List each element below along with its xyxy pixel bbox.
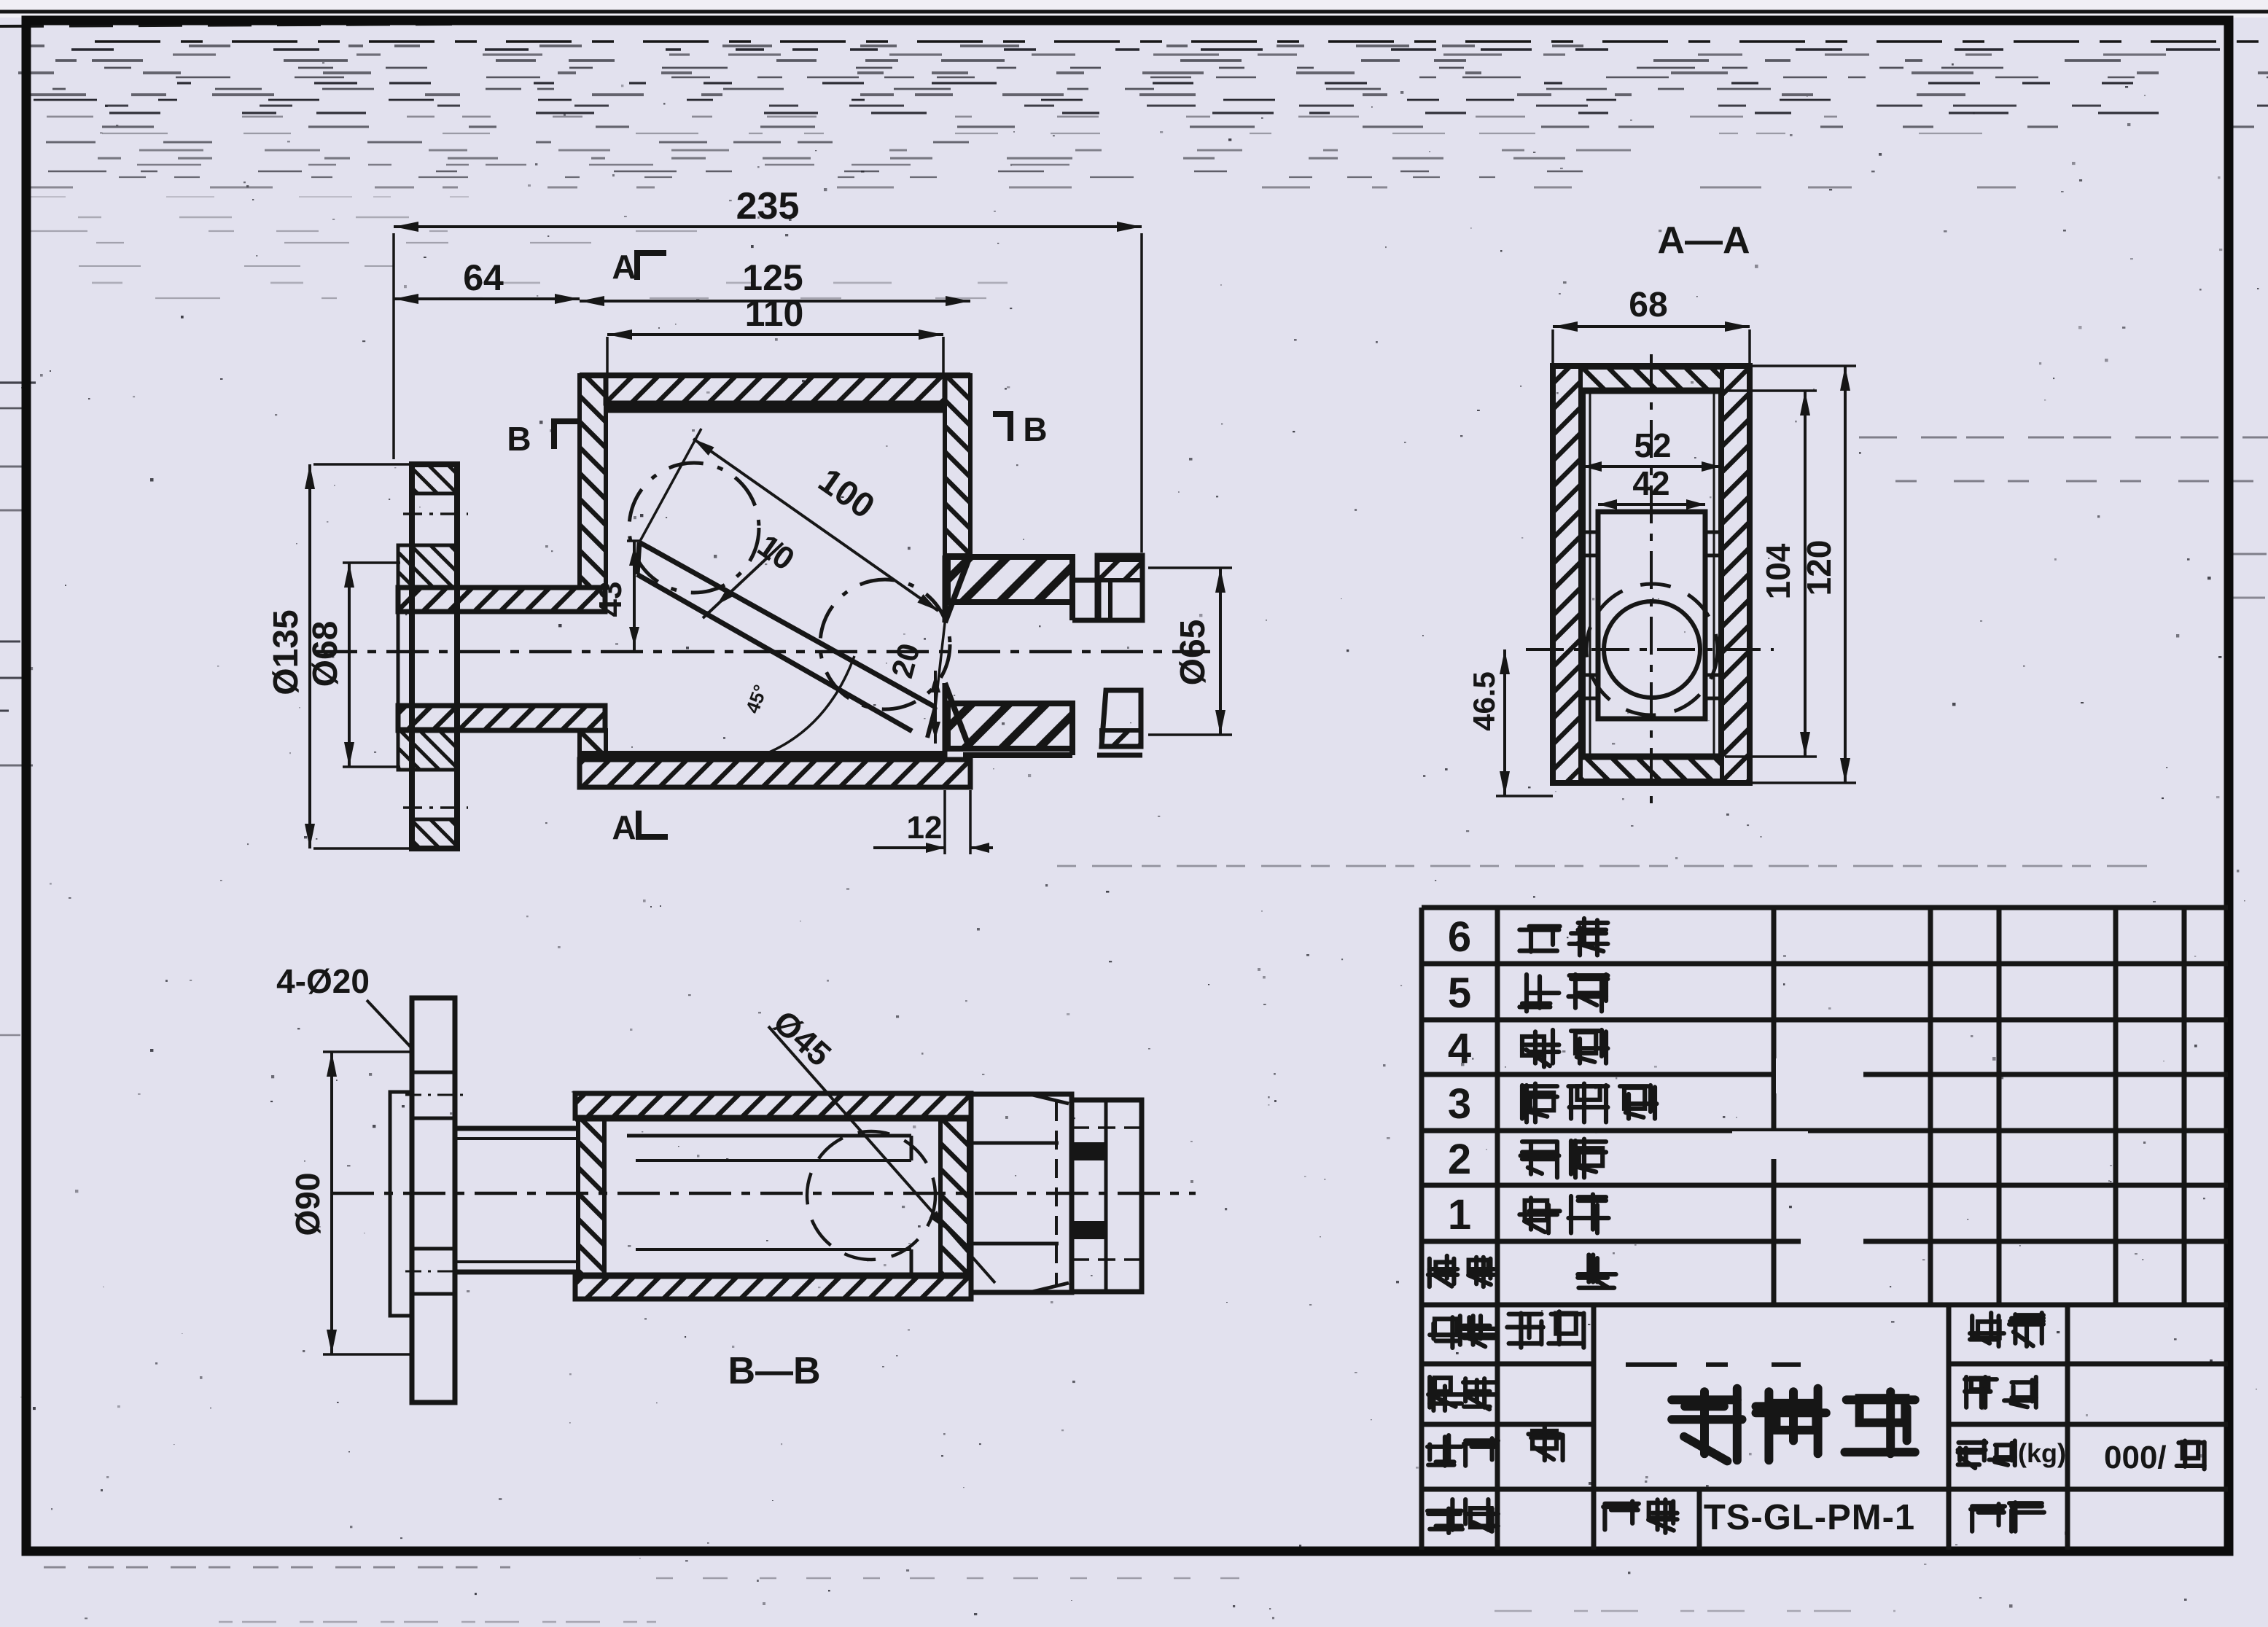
svg-text:Ø65: Ø65 [1174,620,1212,686]
svg-text:Ø68: Ø68 [306,621,345,687]
svg-text:235: 235 [736,185,800,227]
svg-text:125: 125 [742,257,803,298]
svg-text:TS-GL-PM-1: TS-GL-PM-1 [1704,1498,1915,1537]
svg-text:6: 6 [1448,913,1471,961]
svg-text:A—A: A—A [1657,219,1750,262]
svg-text:Ø135: Ø135 [267,609,305,695]
svg-text:A: A [612,808,636,846]
svg-text:4-Ø20: 4-Ø20 [276,962,370,1000]
svg-text:42: 42 [1632,464,1669,502]
svg-text:4: 4 [1448,1025,1471,1072]
svg-text:52: 52 [1634,426,1671,464]
svg-text:(kg): (kg) [2018,1438,2066,1468]
svg-text:Ø90: Ø90 [289,1173,327,1236]
svg-text:B: B [507,420,531,458]
svg-text:A: A [612,248,636,286]
svg-text:B—B: B—B [728,1350,820,1392]
svg-text:2: 2 [1448,1136,1471,1183]
svg-text:5: 5 [1448,969,1471,1017]
svg-text:B: B [1023,410,1047,448]
svg-text:110: 110 [745,293,804,334]
svg-text:46.5: 46.5 [1467,671,1501,731]
svg-text:000/: 000/ [2104,1440,2167,1475]
svg-text:3: 3 [1448,1080,1471,1128]
svg-text:68: 68 [1629,286,1667,324]
svg-text:43: 43 [593,582,628,617]
svg-text:104: 104 [1759,543,1797,599]
svg-text:120: 120 [1800,540,1838,596]
svg-text:1: 1 [1448,1191,1471,1238]
svg-text:12: 12 [907,810,943,846]
svg-text:64: 64 [463,257,504,298]
